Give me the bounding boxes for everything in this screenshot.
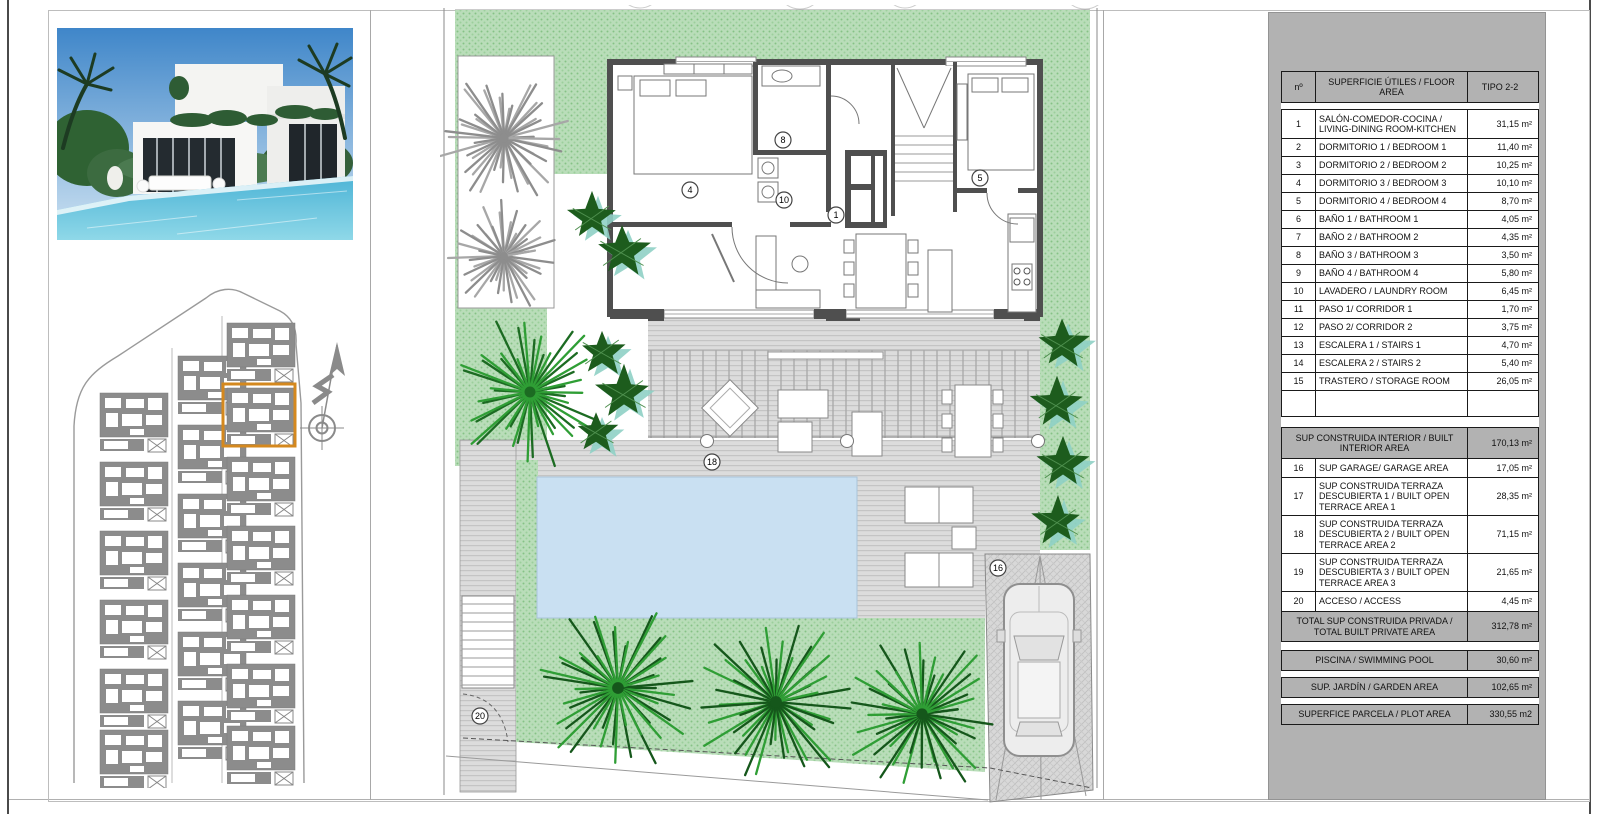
area-table-header: nºSUPERFICIE ÚTILES / FLOOR AREATIPO 2-2 [1282, 72, 1538, 102]
area-value: 8,70 m² [1468, 193, 1538, 210]
label-bed4: 4 [687, 185, 692, 195]
area-no: 3 [1282, 157, 1316, 174]
area-desc: DORMITORIO 1 / BEDROOM 1 [1316, 139, 1468, 156]
villa-photo [57, 28, 353, 240]
area-no: 20 [1282, 592, 1316, 611]
area-row: 15TRASTERO / STORAGE ROOM26,05 m² [1282, 372, 1538, 390]
area-row: 16SUP GARAGE/ GARAGE AREA17,05 m² [1282, 458, 1538, 477]
area-no: 7 [1282, 229, 1316, 246]
area-row: 4DORMITORIO 3 / BEDROOM 310,10 m² [1282, 174, 1538, 192]
area-row: SUP CONSTRUIDA INTERIOR / BUILT INTERIOR… [1282, 428, 1538, 458]
area-row: 5DORMITORIO 4 / BEDROOM 48,70 m² [1282, 192, 1538, 210]
area-row: PISCINA / SWIMMING POOL30,60 m² [1282, 651, 1538, 670]
label-bath3: 8 [780, 135, 785, 145]
area-row: SUP. JARDÍN / GARDEN AREA102,65 m² [1282, 678, 1538, 697]
area-desc [1316, 391, 1468, 416]
area-desc: DORMITORIO 2 / BEDROOM 2 [1316, 157, 1468, 174]
area-desc: PASO 1/ CORRIDOR 1 [1316, 301, 1468, 318]
area-row: 20ACCESO / ACCESS4,45 m² [1282, 591, 1538, 611]
area-desc: DORMITORIO 3 / BEDROOM 3 [1316, 175, 1468, 192]
table-gap [1281, 417, 1539, 427]
area-value [1468, 391, 1538, 416]
area-row: 8BAÑO 3 / BATHROOM 33,50 m² [1282, 246, 1538, 264]
star-bush [595, 364, 655, 421]
frame-divider-right [1103, 10, 1104, 800]
area-no: 15 [1282, 373, 1316, 390]
area-no: 12 [1282, 319, 1316, 336]
area-value: 11,40 m² [1468, 139, 1538, 156]
sheet-left-border [7, 0, 9, 814]
header-type: TIPO 2-2 [1468, 72, 1538, 102]
header-no: nº [1282, 72, 1316, 102]
area-no: 8 [1282, 247, 1316, 264]
unit-plans [100, 323, 295, 788]
terrace-2 [648, 312, 1045, 457]
area-row [1282, 390, 1538, 416]
area-value: 5,40 m² [1468, 355, 1538, 372]
area-value: 1,70 m² [1468, 301, 1538, 318]
area-desc: PASO 2/ CORRIDOR 2 [1316, 319, 1468, 336]
area-value: 4,35 m² [1468, 229, 1538, 246]
area-desc: ESCALERA 1 / STAIRS 1 [1316, 337, 1468, 354]
area-row: 2DORMITORIO 1 / BEDROOM 111,40 m² [1282, 138, 1538, 156]
label-bed5: 5 [977, 173, 982, 183]
house-plan [610, 57, 1040, 319]
area-value: 26,05 m² [1468, 373, 1538, 390]
area-row: 17SUP CONSTRUIDA TERRAZA DESCUBIERTA 1 /… [1282, 477, 1538, 515]
area-row: 9BAÑO 4 / BATHROOM 45,80 m² [1282, 264, 1538, 282]
area-value: 4,45 m² [1468, 592, 1538, 611]
area-desc: SUP CONSTRUIDA TERRAZA DESCUBIERTA 1 / B… [1316, 478, 1468, 515]
area-value: 330,55 m2 [1468, 705, 1538, 724]
area-value: 30,60 m² [1468, 651, 1538, 670]
area-no: 10 [1282, 283, 1316, 300]
area-value: 31,15 m² [1468, 110, 1538, 138]
bottom-garden [516, 618, 985, 772]
label-access: 20 [475, 711, 485, 721]
area-desc: SUP CONSTRUIDA TERRAZA DESCUBIERTA 2 / B… [1316, 516, 1468, 553]
label-living: 1 [833, 210, 838, 220]
area-value: 21,65 m² [1468, 554, 1538, 591]
area-no: 14 [1282, 355, 1316, 372]
area-row: 11PASO 1/ CORRIDOR 11,70 m² [1282, 300, 1538, 318]
area-no: 16 [1282, 459, 1316, 477]
area-desc: SUP GARAGE/ GARAGE AREA [1316, 459, 1468, 477]
area-no: 11 [1282, 301, 1316, 318]
garage-area [985, 554, 1093, 802]
area-row: 6BAÑO 1 / BATHROOM 14,05 m² [1282, 210, 1538, 228]
area-table: nºSUPERFICIE ÚTILES / FLOOR AREATIPO 2-2… [1281, 71, 1539, 725]
frame-divider-left [370, 10, 371, 800]
area-value: 6,45 m² [1468, 283, 1538, 300]
area-desc: SUP CONSTRUIDA TERRAZA DESCUBIERTA 3 / B… [1316, 554, 1468, 591]
area-no: 13 [1282, 337, 1316, 354]
area-desc: ESCALERA 2 / STAIRS 2 [1316, 355, 1468, 372]
area-desc: SUP. JARDÍN / GARDEN AREA [1282, 678, 1468, 697]
area-desc: PISCINA / SWIMMING POOL [1282, 651, 1468, 670]
area-no: 4 [1282, 175, 1316, 192]
label-terrace2: 18 [707, 457, 717, 467]
area-row: 3DORMITORIO 2 / BEDROOM 210,25 m² [1282, 156, 1538, 174]
area-value: 3,75 m² [1468, 319, 1538, 336]
area-desc: BAÑO 2 / BATHROOM 2 [1316, 229, 1468, 246]
area-value: 17,05 m² [1468, 459, 1538, 477]
area-row: 19SUP CONSTRUIDA TERRAZA DESCUBIERTA 3 /… [1282, 553, 1538, 591]
area-row: 1SALÓN-COMEDOR-COCINA / LIVING-DINING RO… [1282, 110, 1538, 138]
area-value: 71,15 m² [1468, 516, 1538, 553]
label-laundry: 10 [779, 195, 789, 205]
area-no: 1 [1282, 110, 1316, 138]
area-desc: TRASTERO / STORAGE ROOM [1316, 373, 1468, 390]
area-row: 18SUP CONSTRUIDA TERRAZA DESCUBIERTA 2 /… [1282, 515, 1538, 553]
key-plan [60, 278, 365, 788]
area-value: 4,05 m² [1468, 211, 1538, 228]
area-desc: TOTAL SUP CONSTRUIDA PRIVADA / TOTAL BUI… [1282, 612, 1468, 641]
label-garage: 16 [993, 563, 1003, 573]
area-no: 17 [1282, 478, 1316, 515]
area-row: 12PASO 2/ CORRIDOR 23,75 m² [1282, 318, 1538, 336]
area-no: 18 [1282, 516, 1316, 553]
area-value: 10,25 m² [1468, 157, 1538, 174]
area-desc: DORMITORIO 4 / BEDROOM 4 [1316, 193, 1468, 210]
area-table-panel: nºSUPERFICIE ÚTILES / FLOOR AREATIPO 2-2… [1268, 12, 1546, 800]
area-row: 13ESCALERA 1 / STAIRS 14,70 m² [1282, 336, 1538, 354]
swimming-pool [537, 477, 857, 618]
area-row: 10LAVADERO / LAUNDRY ROOM6,45 m² [1282, 282, 1538, 300]
area-desc: LAVADERO / LAUNDRY ROOM [1316, 283, 1468, 300]
area-no: 6 [1282, 211, 1316, 228]
header-desc: SUPERFICIE ÚTILES / FLOOR AREA [1316, 72, 1468, 102]
area-desc: BAÑO 3 / BATHROOM 3 [1316, 247, 1468, 264]
area-value: 312,78 m² [1468, 612, 1538, 641]
area-desc: SALÓN-COMEDOR-COCINA / LIVING-DINING ROO… [1316, 110, 1468, 138]
drawing-sheet: { "table": { "header": { "col_no": "nº",… [0, 0, 1600, 814]
north-arrow [300, 342, 345, 450]
area-value: 10,10 m² [1468, 175, 1538, 192]
area-value: 170,13 m² [1468, 428, 1538, 458]
area-desc: SUPERFICE PARCELA / PLOT AREA [1282, 705, 1468, 724]
area-value: 3,50 m² [1468, 247, 1538, 264]
area-row: 7BAÑO 2 / BATHROOM 24,35 m² [1282, 228, 1538, 246]
area-desc: BAÑO 1 / BATHROOM 1 [1316, 211, 1468, 228]
area-value: 4,70 m² [1468, 337, 1538, 354]
area-no: 2 [1282, 139, 1316, 156]
table-gap [1281, 642, 1539, 650]
area-no: 9 [1282, 265, 1316, 282]
area-no [1282, 391, 1316, 416]
area-no: 19 [1282, 554, 1316, 591]
area-desc: SUP CONSTRUIDA INTERIOR / BUILT INTERIOR… [1282, 428, 1468, 458]
area-row: 14ESCALERA 2 / STAIRS 25,40 m² [1282, 354, 1538, 372]
area-no: 5 [1282, 193, 1316, 210]
main-site-plan: 1 4 8 10 5 18 16 20 [440, 5, 1105, 805]
area-value: 102,65 m² [1468, 678, 1538, 697]
area-row: SUPERFICE PARCELA / PLOT AREA330,55 m2 [1282, 705, 1538, 724]
area-desc: BAÑO 4 / BATHROOM 4 [1316, 265, 1468, 282]
car [997, 584, 1081, 756]
area-value: 28,35 m² [1468, 478, 1538, 515]
area-row: TOTAL SUP CONSTRUIDA PRIVADA / TOTAL BUI… [1282, 611, 1538, 641]
area-value: 5,80 m² [1468, 265, 1538, 282]
stairs [895, 66, 953, 186]
area-desc: ACCESO / ACCESS [1316, 592, 1468, 611]
